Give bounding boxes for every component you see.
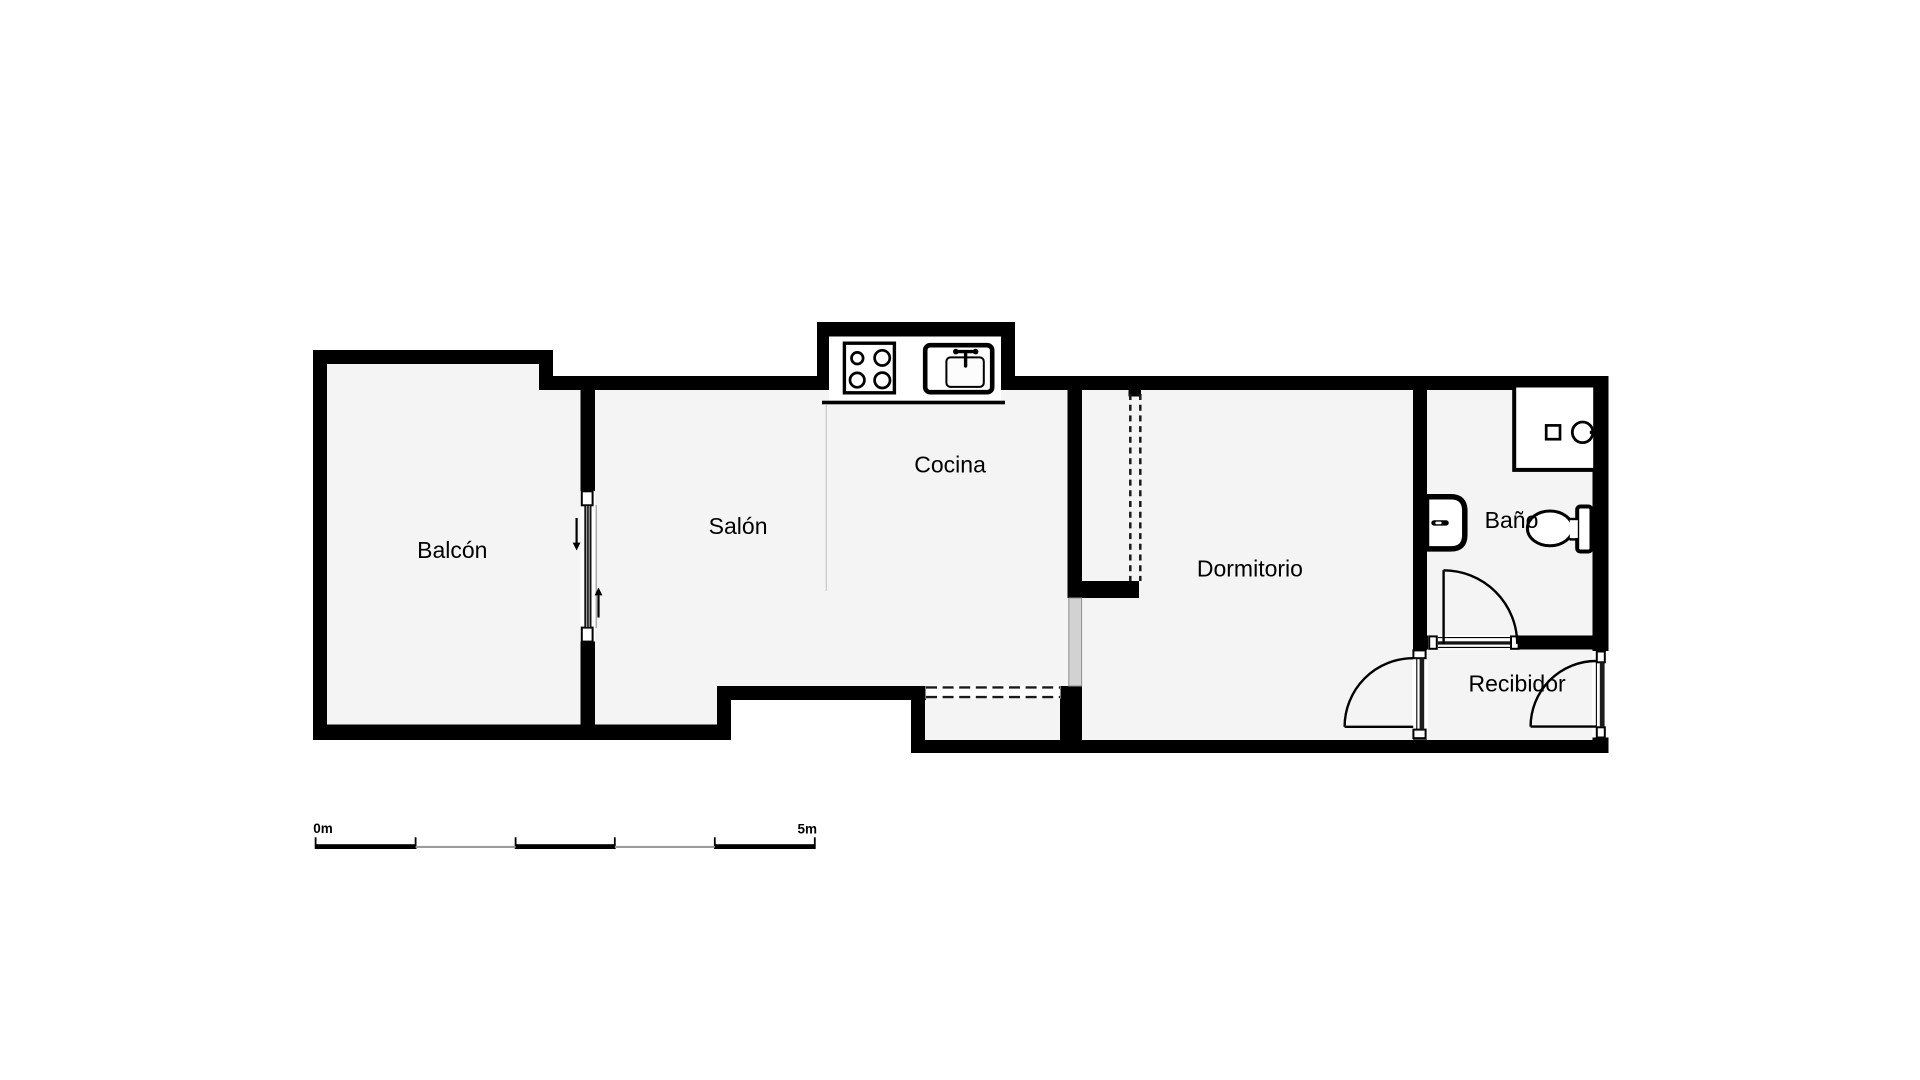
svg-text:Baño: Baño (1485, 507, 1539, 533)
svg-text:Salón: Salón (709, 513, 768, 539)
svg-text:0m: 0m (313, 821, 333, 836)
svg-text:Cocina: Cocina (914, 451, 986, 477)
svg-text:Dormitorio: Dormitorio (1197, 555, 1303, 581)
svg-text:Balcón: Balcón (417, 537, 487, 563)
svg-text:Recibidor: Recibidor (1469, 671, 1566, 697)
svg-text:5m: 5m (797, 822, 817, 837)
